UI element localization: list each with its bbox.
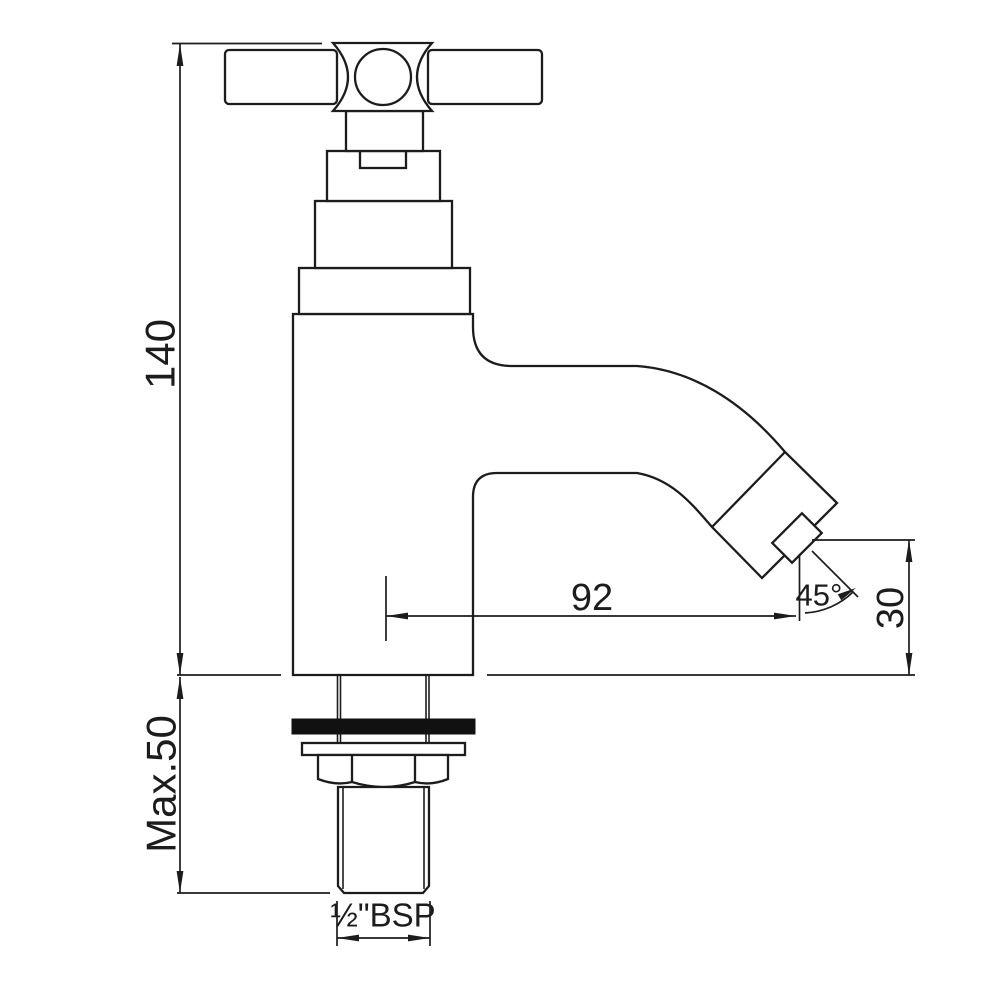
dim-spout-angle: 45° bbox=[796, 551, 858, 621]
dim-label-45: 45° bbox=[796, 578, 843, 613]
dim-label-30: 30 bbox=[870, 587, 912, 629]
body-step-lower bbox=[299, 268, 470, 314]
hex-nut bbox=[318, 755, 448, 787]
bonnet-notch bbox=[360, 151, 406, 168]
dim-label-92: 92 bbox=[571, 577, 613, 619]
arrow-down-icon bbox=[177, 653, 184, 675]
arrow-up-icon bbox=[177, 677, 184, 699]
dim-label-bsp: ½"BSP bbox=[330, 897, 435, 934]
rubber-washer bbox=[292, 719, 475, 734]
arrow-up-icon bbox=[906, 540, 913, 562]
arrow-down-icon bbox=[906, 653, 913, 675]
arrow-down-icon bbox=[177, 871, 184, 893]
handle-stem bbox=[346, 111, 423, 151]
dim-max-deck-thickness: Max.50 bbox=[138, 675, 331, 893]
flat-washer bbox=[302, 743, 465, 755]
arrow-right-icon bbox=[408, 935, 430, 942]
handle-left-arm bbox=[225, 50, 337, 104]
dim-label-max50: Max.50 bbox=[138, 715, 185, 853]
drawing-canvas: 140 Max.50 92 45° 30 bbox=[0, 0, 1000, 1000]
dim-outlet-height: 30 bbox=[487, 540, 915, 675]
arrow-left-icon bbox=[337, 935, 359, 942]
pillar-tap-technical-drawing: 140 Max.50 92 45° 30 bbox=[0, 0, 1000, 1000]
arrow-up-icon bbox=[177, 44, 184, 66]
handle-hub bbox=[333, 43, 432, 111]
body-spout-outline bbox=[293, 314, 837, 675]
body-step-upper bbox=[315, 201, 452, 268]
dim-label-140: 140 bbox=[137, 319, 184, 389]
threaded-shank bbox=[338, 787, 429, 893]
arrow-right-icon bbox=[774, 613, 796, 620]
handle-right-arm bbox=[428, 50, 542, 104]
dim-thread-size: ½"BSP bbox=[330, 897, 435, 947]
